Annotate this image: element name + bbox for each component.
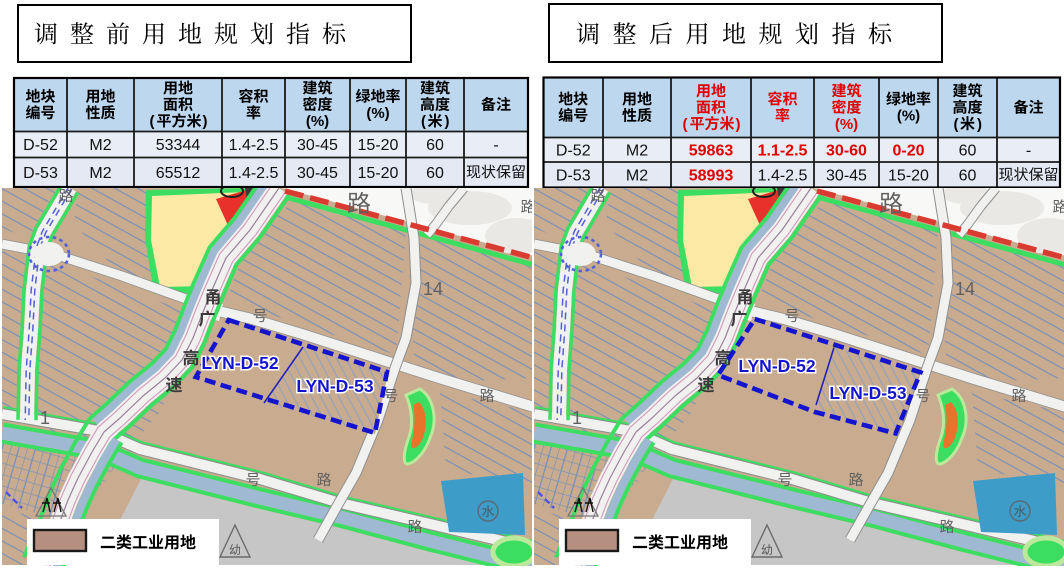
svg-text:(%): (%) bbox=[306, 113, 329, 130]
svg-text:D-52: D-52 bbox=[23, 137, 58, 154]
svg-text:30-60: 30-60 bbox=[826, 142, 867, 159]
svg-text:30-45: 30-45 bbox=[826, 167, 867, 184]
svg-text:D-52: D-52 bbox=[556, 142, 591, 159]
svg-text:(%): (%) bbox=[366, 105, 389, 122]
svg-text:): ) bbox=[203, 113, 208, 130]
svg-text:LYN-D-53: LYN-D-53 bbox=[829, 383, 906, 403]
svg-text:(: ( bbox=[421, 113, 426, 130]
svg-text:30-45: 30-45 bbox=[297, 137, 338, 154]
svg-text:M2: M2 bbox=[626, 167, 648, 184]
svg-text:): ) bbox=[445, 113, 450, 130]
svg-text:60: 60 bbox=[426, 137, 444, 154]
svg-text:LYN-D-52: LYN-D-52 bbox=[201, 353, 278, 373]
svg-text:(: ( bbox=[683, 116, 688, 133]
svg-text:(%): (%) bbox=[897, 108, 920, 125]
svg-text:65512: 65512 bbox=[156, 165, 201, 182]
svg-text:(: ( bbox=[954, 116, 959, 133]
svg-text:): ) bbox=[977, 116, 982, 133]
svg-text:): ) bbox=[736, 116, 741, 133]
svg-text:-: - bbox=[493, 137, 498, 154]
svg-text:1.4-2.5: 1.4-2.5 bbox=[229, 137, 279, 154]
svg-text:-: - bbox=[1026, 142, 1031, 159]
svg-text:53344: 53344 bbox=[156, 137, 201, 154]
svg-text:D-53: D-53 bbox=[556, 167, 591, 184]
svg-text:15-20: 15-20 bbox=[888, 167, 929, 184]
svg-text:M2: M2 bbox=[626, 142, 648, 159]
svg-text:M2: M2 bbox=[89, 137, 111, 154]
svg-text:15-20: 15-20 bbox=[358, 137, 399, 154]
svg-text:(%): (%) bbox=[835, 116, 858, 133]
svg-text:30-45: 30-45 bbox=[297, 165, 338, 182]
svg-text:60: 60 bbox=[426, 165, 444, 182]
svg-text:15-20: 15-20 bbox=[358, 165, 399, 182]
svg-text:0-20: 0-20 bbox=[892, 142, 924, 159]
svg-text:1.4-2.5: 1.4-2.5 bbox=[229, 165, 279, 182]
svg-text:60: 60 bbox=[959, 167, 977, 184]
svg-text:LYN-D-53: LYN-D-53 bbox=[296, 376, 373, 396]
svg-text:59863: 59863 bbox=[689, 142, 734, 159]
svg-text:D-53: D-53 bbox=[23, 165, 58, 182]
svg-text:1.4-2.5: 1.4-2.5 bbox=[758, 167, 808, 184]
svg-text:(: ( bbox=[150, 113, 155, 130]
svg-text:1.1-2.5: 1.1-2.5 bbox=[758, 142, 808, 159]
svg-text:58993: 58993 bbox=[689, 167, 734, 184]
svg-text:M2: M2 bbox=[89, 165, 111, 182]
svg-text:LYN-D-52: LYN-D-52 bbox=[738, 356, 815, 376]
svg-text:60: 60 bbox=[959, 142, 977, 159]
